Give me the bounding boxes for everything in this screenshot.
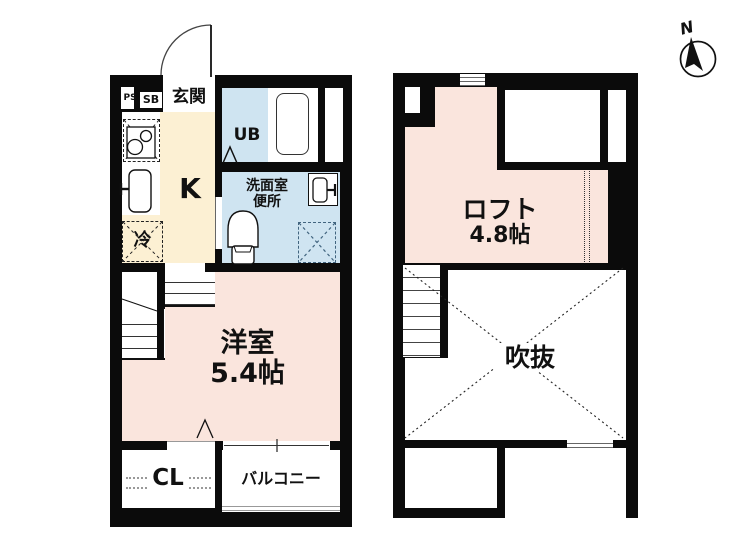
stair-break-line [122, 299, 157, 311]
linework-overlay: N [0, 0, 750, 550]
compass-north-label: N [678, 17, 696, 39]
ub-door-mark [223, 147, 237, 163]
laundry-faucet-icon [313, 178, 335, 202]
floor-plan-canvas: 玄関 PS SB 冷 K UB 洗面室 便所 洋室 [0, 0, 750, 550]
closet-door-mark [197, 420, 213, 438]
toilet-icon [228, 211, 258, 264]
void-label: 吹抜 [505, 344, 555, 372]
washer-place-cross [299, 223, 335, 262]
door-arc [161, 25, 211, 75]
void-label-box: 吹抜 [494, 343, 566, 372]
sink-icon [121, 170, 151, 212]
refrigerator-cross [123, 222, 162, 261]
stove-icon [124, 120, 159, 161]
compass: N [678, 17, 716, 77]
window-sash [224, 439, 329, 452]
entrance-door-swing [161, 25, 211, 77]
